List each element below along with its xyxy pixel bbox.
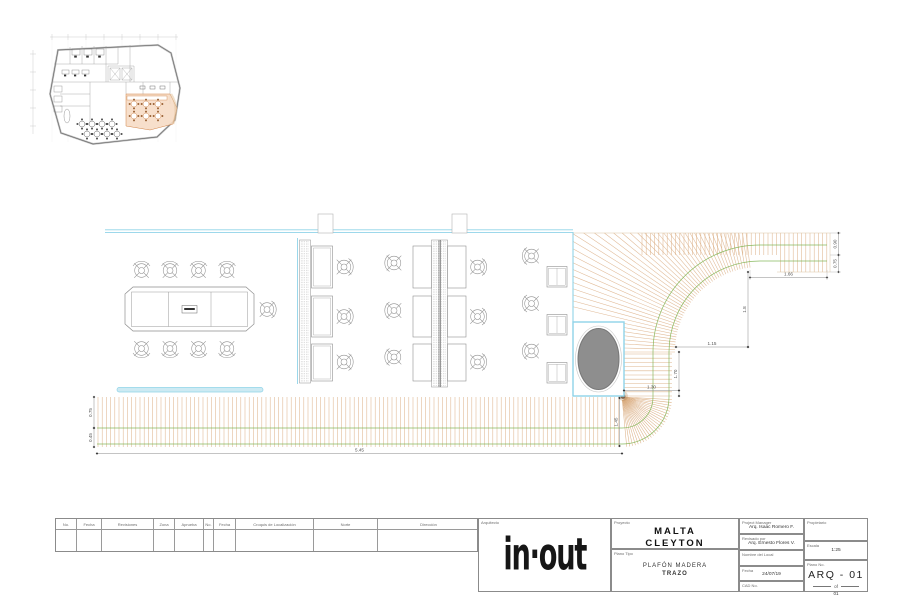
chair-symbol <box>190 341 207 358</box>
chair-symbol <box>219 341 236 358</box>
chair-symbol <box>260 301 277 318</box>
booth-table <box>448 246 467 288</box>
chair-symbol <box>337 308 354 325</box>
sheet-of-text: of <box>834 584 838 589</box>
rev-header-direccion: Dirección <box>377 519 479 551</box>
chair-symbol <box>162 261 179 278</box>
rev-header-norte: Norte <box>313 519 377 551</box>
chair-symbol <box>522 248 539 265</box>
gray-oval <box>578 329 619 390</box>
chair-symbol <box>522 295 539 312</box>
inout-logo: in·out <box>479 519 610 591</box>
svg-text:1.8: 1.8 <box>742 306 747 313</box>
chair-symbol <box>470 354 487 371</box>
rev-header-croquis: Croquis de Localización <box>235 519 313 551</box>
site-cell: Nombre del Local <box>739 550 804 566</box>
booth-table <box>448 296 467 337</box>
dimension: 1.66 <box>749 272 829 279</box>
owner-label: Propietario <box>807 520 826 525</box>
revision-table: No. Fecha Revisiones Zona Aprueba No. Fe… <box>55 518 478 552</box>
rev-header-no2: No. <box>203 519 213 551</box>
owner-cell: Propietario <box>804 518 868 541</box>
keyplan <box>30 34 180 144</box>
booth-table <box>312 246 333 288</box>
chair-symbol <box>133 341 150 358</box>
rev-header-fecha2: Fecha <box>213 519 235 551</box>
sheet-total: 01 <box>805 591 867 596</box>
scale-cell: Escala 1:25 <box>804 541 868 560</box>
svg-text:1.15: 1.15 <box>708 341 717 346</box>
booth-table <box>413 246 432 288</box>
wall-column-tab <box>452 214 467 233</box>
wall-column-tab <box>318 214 333 233</box>
chair-symbol <box>385 255 402 272</box>
chair-symbol <box>385 349 402 366</box>
cad-cell: CAD No. <box>739 581 804 592</box>
architect-cell: Arquitecto in·out <box>478 518 611 592</box>
dimension: 0.75 <box>88 396 95 430</box>
project-manager-value: Arq. Isaac Romero F. <box>740 525 803 530</box>
plan-type-label: Plano Tipo <box>614 551 633 556</box>
sheet-number-cell: Plano No. ARQ - 01 of 01 <box>804 560 868 592</box>
reviewed-value: Arq. Ernesto Flores V. <box>740 541 803 546</box>
booth-table <box>413 344 432 381</box>
rev-header-revisiones: Revisiones <box>101 519 153 551</box>
plan-type-line1: PLAFÓN MADERA <box>612 562 738 570</box>
two-top-tables <box>522 248 567 384</box>
plan-drawing-svg: 1.660.900.751.81.151.701.301.450.750.455… <box>0 0 900 600</box>
rev-header-fecha: Fecha <box>76 519 101 551</box>
booth-table <box>312 344 333 381</box>
sheet-number-value: ARQ - 01 <box>805 569 867 581</box>
chair-symbol <box>219 261 236 278</box>
site-label: Nombre del Local <box>742 552 773 557</box>
banquette-1 <box>298 238 354 384</box>
plan-type-line2: TRAZO <box>612 570 738 578</box>
chair-symbol <box>470 259 487 276</box>
project-label: Proyecto <box>614 520 630 525</box>
project-manager-label: Project Manager <box>742 520 771 525</box>
chair-symbol <box>337 259 354 276</box>
booth-table <box>312 296 333 337</box>
scale-label: Escala <box>807 543 819 548</box>
drawing-sheet: 1.660.900.751.81.151.701.301.450.750.455… <box>0 0 900 600</box>
glass-bench-bar <box>117 388 263 393</box>
dimension: 1.30 <box>623 385 681 392</box>
sheet-of-row: of <box>805 584 867 589</box>
chair-symbol <box>133 261 150 278</box>
svg-text:1.30: 1.30 <box>647 385 656 390</box>
rev-header-zona: Zona <box>153 519 174 551</box>
conference-table-group <box>125 261 276 357</box>
chair-symbol <box>337 354 354 371</box>
date-cell: Fecha 24/07/19 <box>739 566 804 581</box>
of-line-right <box>841 586 859 587</box>
reviewed-cell: Revisado por Arq. Ernesto Flores V. <box>739 534 804 550</box>
svg-text:0.45: 0.45 <box>88 433 93 442</box>
svg-text:0.90: 0.90 <box>833 239 838 248</box>
date-label: Fecha <box>742 568 753 573</box>
svg-text:1.70: 1.70 <box>673 369 678 378</box>
booth-table <box>448 344 467 381</box>
reviewed-label: Revisado por <box>742 536 766 541</box>
chair-symbol <box>190 261 207 278</box>
banquette-2 <box>385 240 487 387</box>
plan-type-cell: Plano Tipo PLAFÓN MADERA TRAZO <box>611 549 739 592</box>
chair-symbol <box>522 343 539 360</box>
svg-text:1.66: 1.66 <box>784 272 793 277</box>
svg-text:0.75: 0.75 <box>88 408 93 417</box>
dimension: 1.15 <box>675 341 750 348</box>
project-manager-cell: Project Manager Arq. Isaac Romero F. <box>739 518 804 534</box>
of-line-left <box>813 586 831 587</box>
svg-text:5.45: 5.45 <box>355 448 364 453</box>
dimension: 5.45 <box>96 448 624 455</box>
cad-label: CAD No. <box>742 583 758 588</box>
project-name-line1: MALTA <box>612 526 738 538</box>
svg-text:0.75: 0.75 <box>833 259 838 268</box>
dimension: 0.90 <box>833 232 840 257</box>
logo-text: in·out <box>503 529 586 581</box>
rev-header-aprueba: Aprueba <box>174 519 203 551</box>
dimension: 0.75 <box>833 254 840 274</box>
scale-value: 1:25 <box>805 548 867 553</box>
rev-header-no: No. <box>56 519 76 551</box>
plan-type: PLAFÓN MADERA TRAZO <box>612 562 738 578</box>
dimension: 0.45 <box>88 427 95 449</box>
chair-symbol <box>470 308 487 325</box>
chair-symbol <box>385 302 402 319</box>
project-cell: Proyecto MALTA CLEYTON <box>611 518 739 549</box>
chair-symbol <box>162 341 179 358</box>
svg-text:1.45: 1.45 <box>614 417 619 426</box>
booth-table <box>413 296 432 337</box>
sheet-number-label: Plano No. <box>807 562 825 567</box>
project-name: MALTA CLEYTON <box>612 526 738 550</box>
dimension: 1.8 <box>742 271 749 349</box>
